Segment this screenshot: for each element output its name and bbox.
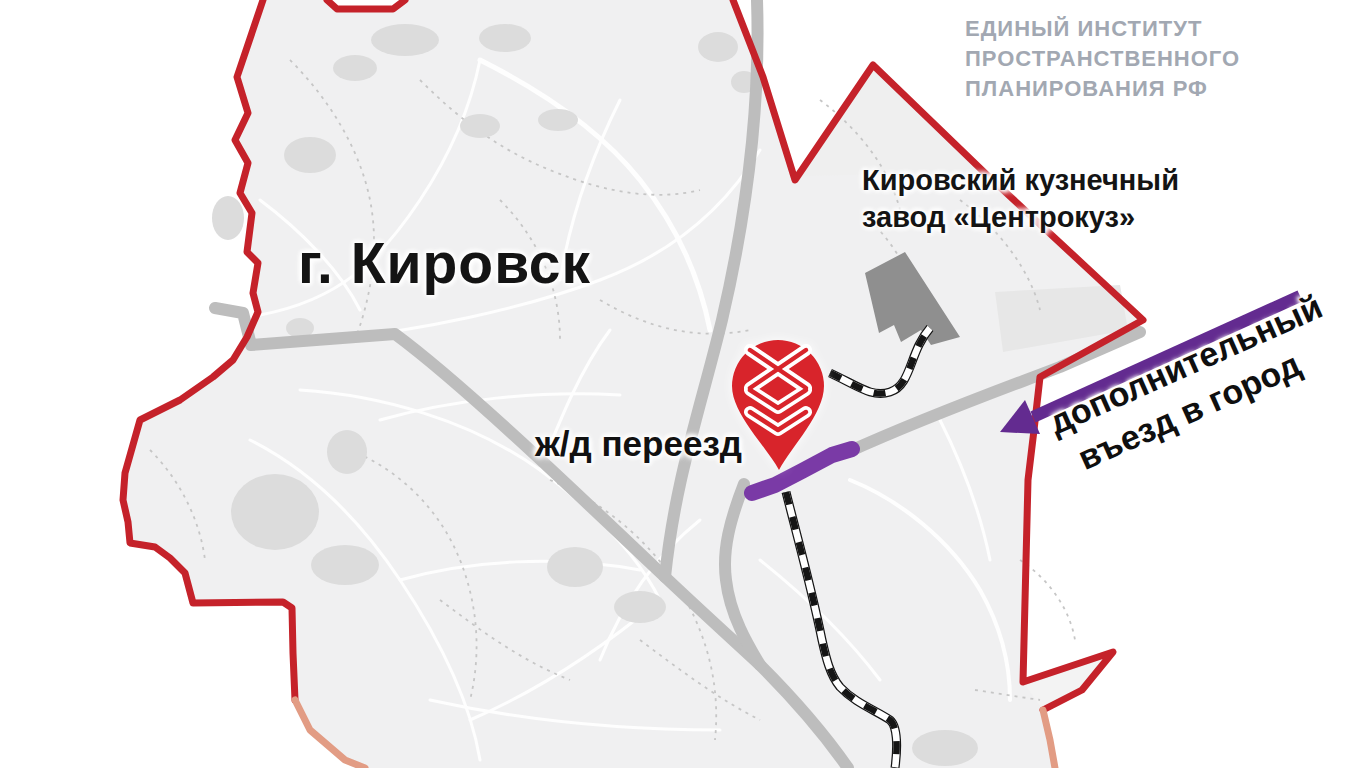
city-title: г. Кировск: [298, 230, 591, 296]
institute-logo-line2: ПРОСТРАНСТВЕННОГО: [965, 44, 1240, 74]
railway-crossing-label: ж/д переезд: [535, 424, 742, 464]
institute-logo-line3: ПЛАНИРОВАНИЯ РФ: [965, 74, 1240, 104]
city-area: [123, 0, 1143, 768]
factory-label-line1: Кировский кузнечный: [862, 162, 1179, 199]
boundary-top-notch: [327, 0, 405, 9]
map-infographic: ЕДИНЫЙ ИНСТИТУТ ПРОСТРАНСТВЕННОГО ПЛАНИР…: [0, 0, 1366, 768]
factory-label: Кировский кузнечный завод «Центрокуз»: [862, 162, 1179, 236]
institute-logo: ЕДИНЫЙ ИНСТИТУТ ПРОСТРАНСТВЕННОГО ПЛАНИР…: [965, 14, 1240, 104]
institute-logo-line1: ЕДИНЫЙ ИНСТИТУТ: [965, 14, 1240, 44]
factory-label-line2: завод «Центрокуз»: [862, 199, 1179, 236]
